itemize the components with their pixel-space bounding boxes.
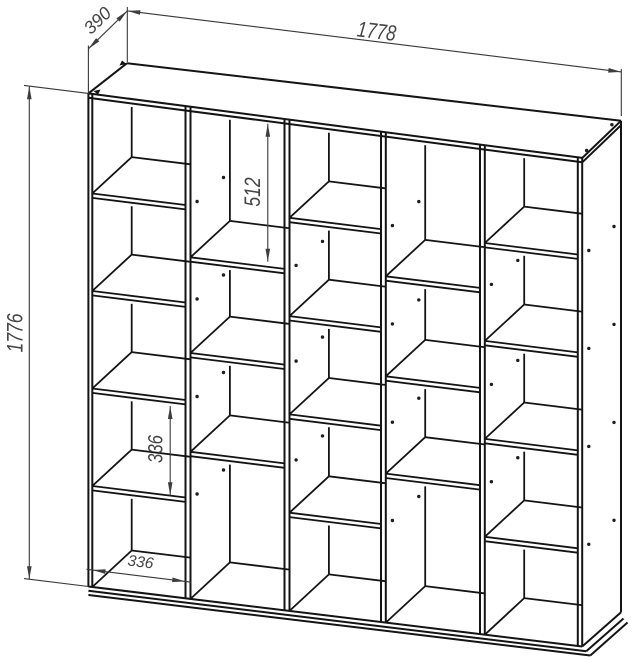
svg-text:336: 336 [145,435,168,463]
svg-text:512: 512 [241,177,265,206]
svg-text:336: 336 [127,552,155,572]
svg-text:1776: 1776 [4,313,28,353]
svg-text:1778: 1778 [356,18,398,47]
